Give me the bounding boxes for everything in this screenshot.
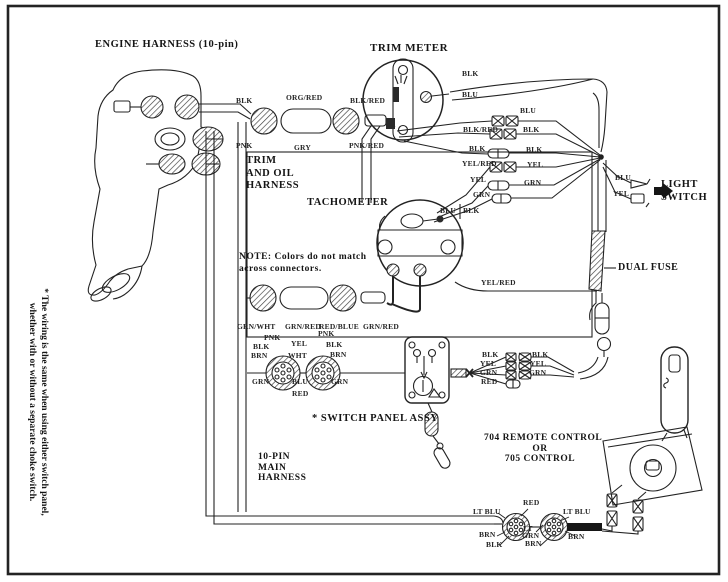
wire-label-blu: BLU (615, 174, 631, 182)
wire-label-grn: GRN (524, 179, 541, 187)
wire-label-org-red: ORG/RED (286, 94, 322, 102)
key (432, 446, 452, 470)
trim-oil-harness-title: TRIM AND OIL HARNESS (246, 155, 299, 193)
wire-label-yel-red: YEL/RED (481, 279, 516, 287)
wire-label-pnk: PNK (318, 330, 334, 338)
main-harness-cable (199, 104, 503, 524)
wire-label-brn: BRN (479, 531, 495, 539)
wire-label-yel: YEL (480, 360, 496, 368)
wire-label-blk: BLK (532, 351, 548, 359)
wire-label-grn-red: GRN/RED (285, 323, 321, 331)
light-switch-label: LIGHT SWITCH (661, 178, 707, 204)
wire-label-lt-blu: LT BLU (473, 508, 501, 516)
tachometer-title: TACHOMETER (307, 197, 388, 208)
wire-label-blk: BLK (253, 343, 269, 351)
wire-label-blu: BLU (440, 207, 456, 215)
wire-label-yel: YEL (470, 176, 486, 184)
wire-label-red: RED (481, 378, 497, 386)
wire-label-blk: BLK (486, 541, 502, 549)
wiring-diagram-page: ENGINE HARNESS (10-pin) TRIM METER TRIM … (0, 0, 728, 582)
wire-label-blu: BLU (462, 91, 478, 99)
wire-label-blk: BLK (326, 341, 342, 349)
wire-label-red: RED (292, 390, 308, 398)
wire-label-blk: BLK (236, 97, 252, 105)
wire-label-pnk: PNK (264, 334, 280, 342)
wire-label-yel: YEL (291, 340, 307, 348)
remote-control-drawing (603, 347, 702, 505)
wire-label-yel-red: YEL/RED (462, 160, 497, 168)
wire-label-yel: YEL (613, 190, 629, 198)
wire-label-blk-red: BLK/RED (350, 97, 385, 105)
yel-red-wire (455, 282, 597, 291)
wire-label-grn: GRN (331, 378, 348, 386)
wire-label-blu: BLU (520, 107, 536, 115)
engine-connector-plugs (130, 95, 223, 175)
remote-control-label: 704 REMOTE CONTROL OR 705 CONTROL (484, 433, 596, 465)
wire-label-grn: GRN (480, 369, 497, 377)
wire-label-brn: BRN (568, 533, 584, 541)
switch-panel-assy-label: * SWITCH PANEL ASSY (312, 413, 438, 424)
wire-label-grn: GRN (529, 369, 546, 377)
control-lever (661, 347, 688, 433)
wire-label-brn: BRN (251, 352, 267, 360)
wire-label-grn: GRN (473, 191, 490, 199)
dual-fuse-label: DUAL FUSE (618, 262, 678, 273)
tach-harness-connectors (247, 285, 385, 311)
wire-label-blk: BLK (482, 351, 498, 359)
wire-label-brn: BRN (330, 351, 346, 359)
note-text: NOTE: Colors do not match across connect… (239, 252, 367, 275)
wire-label-gry: GRY (294, 144, 311, 152)
wire-label-blk: BLK (462, 70, 478, 78)
wire-label-lt-blu: LT BLU (563, 508, 591, 516)
wire-label-grn-wht: GRN/WHT (237, 323, 276, 331)
wire-label-yel: YEL (527, 161, 543, 169)
wire-label-red: RED (523, 499, 539, 507)
wire-label-wht: WHT (288, 352, 307, 360)
wire-label-grn: GRN (252, 378, 269, 386)
wire-label-blk: BLK (523, 126, 539, 134)
wire-label-blk: BLK (526, 146, 542, 154)
control-base (603, 427, 702, 505)
eight-pin-connectors (247, 356, 405, 390)
trim-meter-title: TRIM METER (370, 42, 448, 54)
wire-label-yel: YEL (530, 360, 546, 368)
wire-label-pnk: PNK (236, 142, 252, 150)
wire-label-grn-red: GRN/RED (363, 323, 399, 331)
switch-panel-assy-drawing (405, 337, 473, 470)
wire-label-blk: BLK (463, 207, 479, 215)
wire-label-brn: BRN (525, 540, 541, 548)
footnote-text: * The wiring is the same when using eith… (24, 246, 50, 558)
wire-label-pnk-red: PNK/RED (349, 142, 384, 150)
engine-harness-title: ENGINE HARNESS (10-pin) (95, 39, 238, 50)
wire-label-blk: BLK (469, 145, 485, 153)
main-harness-label: 10-PIN MAIN HARNESS (258, 452, 306, 484)
wire-label-blu: BLU (292, 378, 308, 386)
right-harness-dual-fuse (578, 160, 616, 379)
wire-label-blk-red: BLK/RED (463, 126, 498, 134)
wiring-diagram-art (0, 0, 728, 582)
